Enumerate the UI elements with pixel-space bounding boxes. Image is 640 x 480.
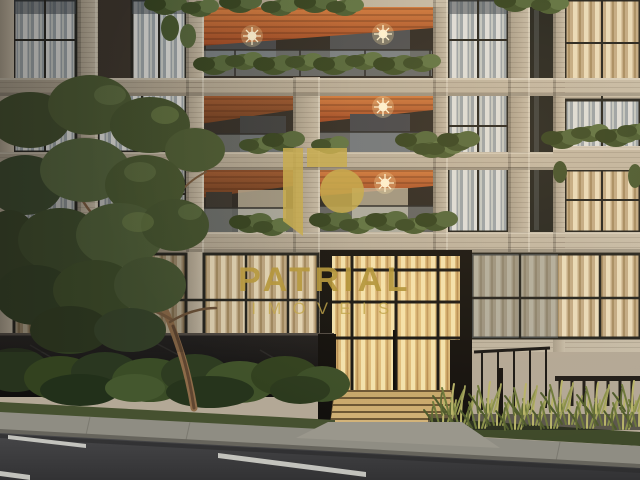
- lighting-overlay: [0, 0, 640, 480]
- logo-disc: [320, 169, 364, 213]
- architectural-render: PATRIAL IMÓVEIS: [0, 0, 640, 480]
- logo-bar: [307, 148, 347, 167]
- scene-canvas: PATRIAL IMÓVEIS: [0, 0, 640, 480]
- logo-stem: [283, 148, 303, 236]
- watermark-subtitle: IMÓVEIS: [251, 299, 400, 318]
- watermark-brand: PATRIAL: [238, 261, 412, 299]
